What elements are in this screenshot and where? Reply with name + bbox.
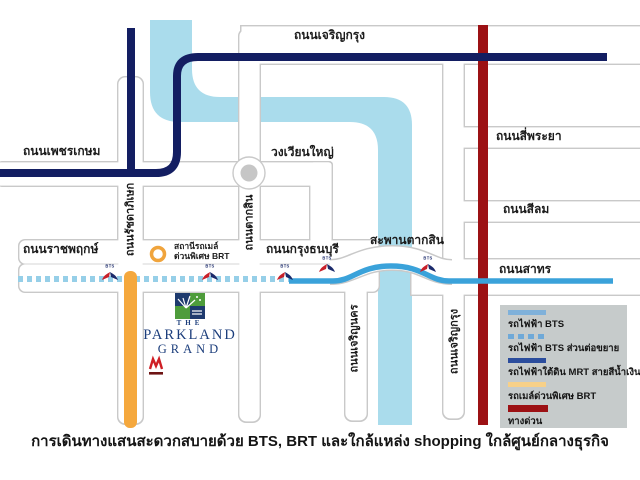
- legend-swatch-bts-extension: [508, 334, 546, 339]
- bts-wings-icon: [202, 272, 218, 281]
- parkland-logo-grand: GRAND: [140, 342, 240, 357]
- legend-label-bts-extension: รถไฟฟ้า BTS ส่วนต่อขยาย: [508, 341, 619, 356]
- wongwianyai-roundabout: [233, 157, 265, 189]
- parkland-logo-the: THE: [140, 319, 240, 327]
- label-phetkasem: ถนนเพชรเกษม: [23, 145, 100, 158]
- legend-swatch-mrt: [508, 358, 546, 363]
- legend: รถไฟฟ้า BTS รถไฟฟ้า BTS ส่วนต่อขยาย รถไฟ…: [500, 305, 627, 428]
- legend-label-brt: รถเมล์ด่วนพิเศษ BRT: [508, 389, 596, 404]
- mall-logo: [149, 359, 163, 375]
- bts-wings-icon: [277, 272, 293, 281]
- label-taksin-road: ถนนตากสิน: [245, 192, 256, 254]
- label-charoennakhon: ถนนเจริญนคร: [350, 303, 361, 375]
- bts-station-icon: BTS: [420, 255, 436, 277]
- legend-swatch-brt: [508, 382, 546, 387]
- legend-label-bts: รถไฟฟ้า BTS: [508, 317, 564, 332]
- bts-station-icon: BTS: [102, 263, 118, 285]
- bts-station-icon: BTS: [277, 263, 293, 285]
- legend-label-mrt: รถไฟฟ้าใต้ดิน MRT สายสีน้ำเงิน: [508, 365, 640, 380]
- label-charoenkrung-top: ถนนเจริญกรุง: [294, 29, 365, 42]
- label-ratchadaphisek: ถนนรัชดาภิเษก: [126, 175, 137, 265]
- brt-line: [124, 271, 137, 428]
- expressway-line: [478, 25, 488, 425]
- map-caption: การเดินทางแสนสะดวกสบายด้วย BTS, BRT และใ…: [0, 429, 640, 453]
- river: [150, 20, 412, 425]
- label-brt-station-2: ด่วนพิเศษ BRT: [174, 252, 229, 261]
- label-silom: ถนนสีลม: [503, 203, 549, 216]
- transit-map: ถนนเจริญกรุง ถนนเพชรเกษม วงเวียนใหญ่ ถนน…: [0, 0, 640, 480]
- brt-station-icon: [152, 248, 165, 261]
- parkland-logo-mark: [175, 293, 205, 319]
- bts-station-icon: BTS: [202, 263, 218, 285]
- label-saphan-taksin: สะพานตากสิน: [370, 234, 444, 247]
- bts-station-icon: BTS: [319, 255, 335, 277]
- bts-wings-icon: [319, 264, 335, 273]
- bts-wings-icon: [102, 272, 118, 281]
- label-brt-station-1: สถานีรถเมล์: [174, 242, 218, 251]
- label-ratchaphruek: ถนนราชพฤกษ์: [23, 243, 98, 256]
- legend-swatch-bts: [508, 310, 546, 315]
- label-charoenkrung-side: ถนนเจริญกรุง: [450, 302, 461, 382]
- label-sathorn: ถนนสาทร: [499, 263, 551, 276]
- label-wongwianyai: วงเวียนใหญ่: [271, 146, 334, 159]
- legend-label-expressway: ทางด่วน: [508, 414, 542, 429]
- legend-swatch-expressway: [508, 405, 548, 412]
- label-siphraya: ถนนสี่พระยา: [496, 130, 562, 143]
- bts-wings-icon: [420, 264, 436, 273]
